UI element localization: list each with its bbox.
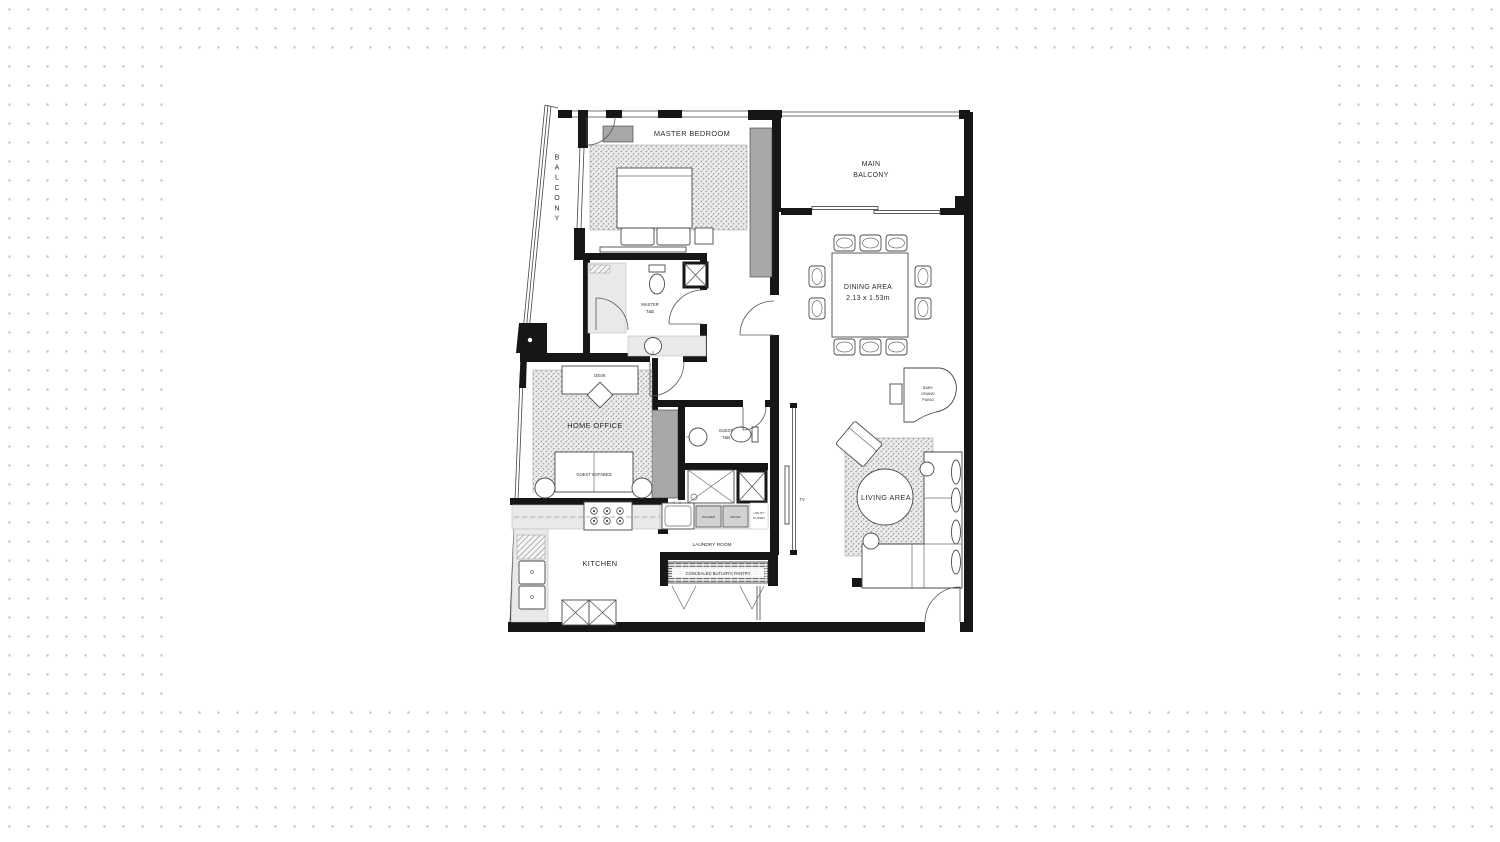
- guest-sink: [689, 428, 707, 446]
- entrance-door-swing: [925, 587, 960, 622]
- piano-label-3: PIANO: [922, 398, 934, 402]
- guest-sofabed-label: GUEST SOFABED: [576, 472, 611, 477]
- laundry-room: WASHER DRYER UTILITY CLOSET LAUNDRY ROOM: [660, 501, 768, 548]
- piano-bench: [890, 384, 902, 404]
- bed: [617, 168, 692, 228]
- wardrobe: [652, 410, 678, 498]
- guest-tb-label-1: GUEST: [719, 428, 734, 433]
- butlers-pantry: CONCEALED BUTLER'S PANTRY: [668, 562, 768, 609]
- throw-pillow: [952, 488, 961, 512]
- desk-label: DESK: [594, 373, 606, 378]
- toilet-tank: [649, 265, 665, 272]
- main-balcony-label-2: BALCONY: [853, 172, 888, 179]
- bifold-door: [672, 586, 696, 609]
- master-tb: MASTER T&B: [588, 263, 774, 356]
- side-table: [863, 533, 879, 549]
- throw-pillow: [952, 460, 961, 484]
- master-vanity: [628, 336, 706, 356]
- utility-label-1: UTILITY: [753, 511, 764, 515]
- side-table: [632, 478, 652, 498]
- drainboard: [517, 535, 545, 559]
- bedroom-closet: [603, 126, 633, 142]
- dining-size-label: 2.13 x 1.53m: [846, 295, 890, 302]
- side-table: [535, 478, 555, 498]
- pillow: [621, 228, 654, 245]
- dryer-label: DRYER: [730, 515, 741, 519]
- laundry-room-label: LAUNDRY ROOM: [692, 542, 731, 548]
- master-bedroom-label: MASTER BEDROOM: [654, 129, 730, 138]
- dining-area-label: DINING AREA: [844, 284, 892, 291]
- pillow: [657, 228, 690, 245]
- pantry-label: CONCEALED BUTLER'S PANTRY: [685, 571, 750, 576]
- washer-label: WASHER: [702, 515, 716, 519]
- master-tb-label-2: T&B: [646, 309, 654, 314]
- floor-plan-svg: BALCONY: [500, 100, 980, 645]
- floor-plan: BALCONY: [500, 100, 980, 645]
- guest-tb: GUEST T&B: [686, 407, 766, 503]
- bifold-door: [740, 586, 764, 609]
- tv-wall: TV: [785, 403, 805, 555]
- kitchen-sink: [519, 586, 545, 609]
- master-shower: [588, 263, 626, 333]
- tv: [785, 466, 789, 524]
- balcony-end-wall: [516, 323, 547, 353]
- throw-pillow: [952, 550, 961, 574]
- utility-label-2: CLOSET: [753, 516, 765, 520]
- guest-tb-label-2: T&B: [722, 435, 730, 440]
- throw-pillow: [952, 520, 961, 544]
- piano: BABY GRAND PIANO: [890, 368, 956, 422]
- living-area: LIVING AREA: [836, 421, 962, 588]
- piano-label-2: GRAND: [921, 392, 935, 396]
- bedroom-wardrobe: [750, 128, 772, 277]
- entry: [925, 587, 960, 622]
- kitchen-sink: [519, 561, 545, 584]
- side-table: [920, 462, 934, 476]
- laundry-tub: [662, 503, 694, 529]
- main-balcony: MAIN BALCONY: [853, 161, 888, 179]
- master-toilet: [650, 274, 665, 294]
- dining-area: DINING AREA 2.13 x 1.53m: [809, 235, 931, 355]
- piano-label-1: BABY: [923, 386, 934, 390]
- page-background: BALCONY: [0, 0, 1500, 842]
- bench: [600, 247, 686, 252]
- stove: [584, 502, 632, 530]
- side-balcony: BALCONY: [516, 105, 561, 353]
- tv-label: TV: [799, 497, 805, 502]
- home-office-label: HOME OFFICE: [567, 421, 622, 430]
- kitchen-label: KITCHEN: [582, 559, 617, 568]
- living-area-label: LIVING AREA: [861, 493, 911, 502]
- side-balcony-label: BALCONY: [553, 154, 560, 225]
- master-tb-label-1: MASTER: [641, 302, 658, 307]
- nightstand: [695, 228, 713, 244]
- main-balcony-label-1: MAIN: [862, 161, 881, 168]
- toilet-tank: [752, 427, 758, 442]
